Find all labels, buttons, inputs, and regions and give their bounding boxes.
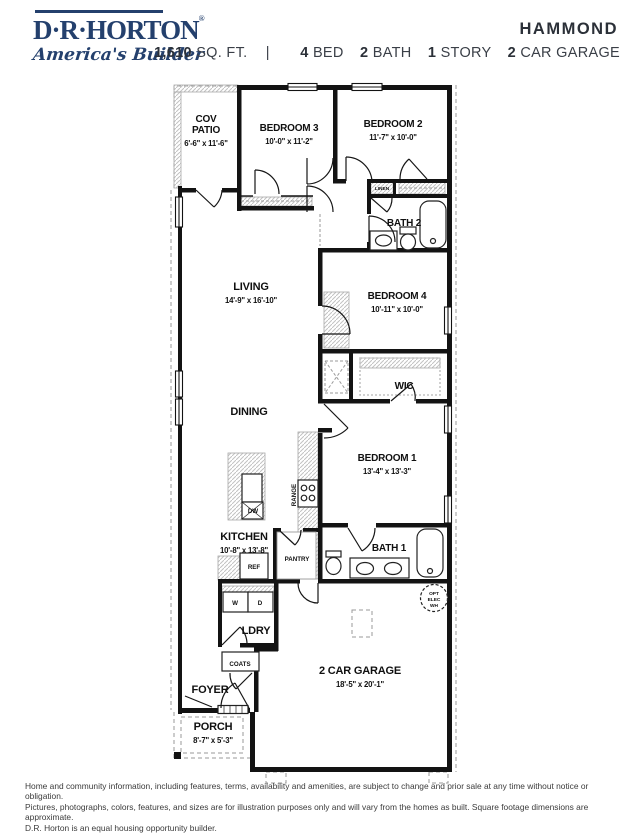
disclaimer-line-2: Pictures, photographs, colors, features,… [25, 802, 625, 823]
label-garage: 2 CAR GARAGE [319, 665, 401, 677]
toilet-bowl-bath1 [326, 558, 341, 575]
dims-bedroom1: 13'-4" x 13'-3" [363, 467, 411, 476]
dims-bedroom4: 10'-11" x 10'-0" [371, 305, 423, 314]
label-opt-wh-2: ELEC [428, 597, 441, 603]
dims-living: 14'-9" x 16'-10" [225, 296, 278, 305]
window-dining-a [176, 371, 183, 397]
label-ldry: LDRY [242, 625, 272, 637]
disclaimer-line-1: Home and community information, includin… [25, 781, 625, 802]
window-bedroom4 [445, 307, 452, 334]
label-cov-patio-2: PATIO [192, 125, 220, 136]
label-ref: REF [248, 564, 261, 571]
label-washer: W [232, 600, 238, 607]
utility-closet [325, 361, 348, 393]
label-bedroom4: BEDROOM 4 [368, 291, 427, 302]
tub-drain-bath1 [428, 569, 433, 574]
front-door-threshold [218, 706, 248, 714]
dims-bedroom3: 10'-0" x 11'-2" [265, 137, 313, 146]
opt-water-heater-dashed-box [352, 610, 372, 637]
door-bedroom2 [346, 157, 372, 181]
door-linen [371, 198, 392, 212]
label-pantry: PANTRY [285, 556, 311, 563]
label-living: LIVING [233, 281, 268, 293]
label-range: RANGE [291, 484, 298, 506]
toilet-bowl-bath2 [401, 234, 416, 250]
label-linen: LINEN [375, 186, 390, 192]
label-porch: PORCH [194, 721, 233, 733]
label-dw: DW [248, 508, 258, 515]
door-patio [196, 190, 222, 207]
sink-bath1-left [357, 563, 374, 575]
door-garage-entry [298, 583, 318, 603]
window-bedroom1-b [445, 496, 452, 523]
label-bedroom1: BEDROOM 1 [358, 453, 417, 464]
dims-porch: 8'-7" x 5'-3" [193, 736, 233, 745]
label-dryer: D [258, 600, 263, 607]
label-foyer: FOYER [192, 684, 229, 696]
dims-bedroom2: 11'-7" x 10'-0" [369, 133, 417, 142]
door-bedroom1 [324, 404, 348, 438]
label-bedroom2: BEDROOM 2 [364, 119, 423, 130]
window-bedroom3 [288, 84, 317, 91]
door-coats [230, 673, 252, 689]
door-foyer-leaf [185, 696, 212, 707]
label-opt-wh-1: OPT [429, 591, 439, 597]
label-dining: DINING [230, 406, 267, 418]
tub-drain-bath2 [431, 239, 436, 244]
window-dining-b [176, 399, 183, 425]
porch-post [174, 752, 181, 759]
door-bedroom2-closet [400, 159, 427, 179]
label-bedroom3: BEDROOM 3 [260, 123, 319, 134]
kitchen-counter-upper [298, 432, 318, 480]
bedroom4-closet [324, 292, 349, 348]
label-opt-wh-3: WH [430, 603, 439, 609]
dims-kitchen: 10'-8" x 13'-8" [220, 546, 268, 555]
patio-top-edge [174, 85, 238, 92]
label-coats: COATS [229, 661, 250, 668]
label-bath2: BATH 2 [387, 218, 422, 229]
kitchen-cabinet [218, 556, 240, 580]
window-bedroom1-a [445, 406, 452, 433]
door-hall-a [307, 158, 333, 184]
label-cov-patio-1: COV [195, 114, 217, 125]
wic-shelf [360, 358, 440, 368]
island-sink-cabinet [242, 474, 262, 502]
sink-bath1-right [385, 563, 402, 575]
dims-cov-patio: 6'-6" x 11'-6" [184, 139, 228, 148]
disclaimer: Home and community information, includin… [25, 781, 625, 833]
label-wic: WIC [395, 381, 414, 392]
window-bedroom2 [352, 84, 382, 91]
dims-garage: 18'-5" x 20'-1" [336, 680, 384, 689]
sink-bath2 [376, 235, 392, 246]
patio-left-edge [174, 92, 181, 188]
label-bath1: BATH 1 [372, 543, 407, 554]
exterior-wall-bottom [250, 767, 452, 772]
floorplan-drawing: COV PATIO 6'-6" x 11'-6" BEDROOM 3 10'-0… [0, 0, 639, 828]
range [298, 480, 318, 507]
window-living [176, 197, 183, 227]
exterior-wall-top [238, 85, 452, 90]
toilet-tank-bath1 [326, 551, 341, 557]
exterior-wall-left [178, 186, 182, 714]
door-bedroom3 [255, 170, 279, 194]
label-kitchen: KITCHEN [220, 531, 268, 543]
laundry-shelf [222, 586, 274, 592]
